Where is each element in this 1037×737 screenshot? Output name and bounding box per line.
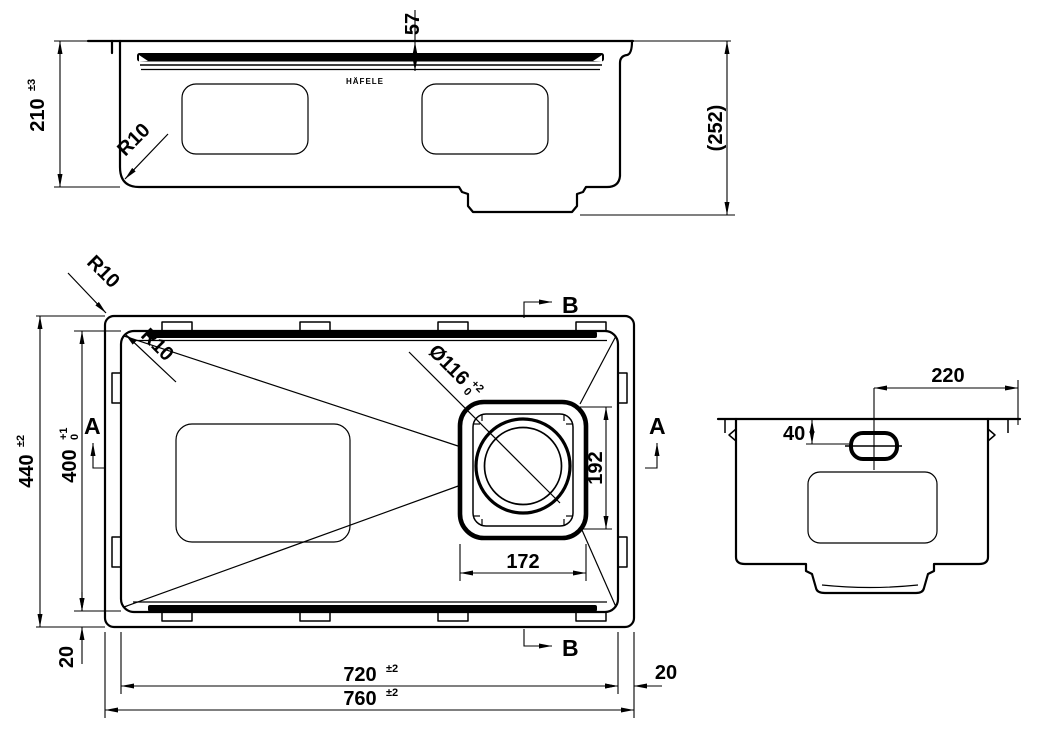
dim-value: 760 xyxy=(343,688,376,710)
tab xyxy=(576,322,606,331)
dim-value: (252) xyxy=(705,105,727,152)
section-label: B xyxy=(562,635,579,661)
sink-technical-drawing: HÄFELE 210 ±3 57 (252) xyxy=(0,0,1037,737)
dim-overflow-depth-40: 40 xyxy=(783,420,849,445)
dim-tolerance: ±2 xyxy=(386,687,398,699)
tab xyxy=(112,537,121,567)
label-panel-plan xyxy=(176,424,350,542)
tab xyxy=(438,322,468,331)
label-panel-left xyxy=(182,84,308,154)
section-view: 220 40 xyxy=(718,365,1020,593)
section-body-outline xyxy=(736,419,988,593)
mounting-tabs xyxy=(112,322,627,621)
bowl-outline xyxy=(121,331,618,612)
section-arrow xyxy=(93,443,105,468)
dim-value: Ø116 xyxy=(424,340,473,389)
dim-value: 40 xyxy=(783,423,805,445)
label-panel-section xyxy=(808,472,937,543)
crease-line xyxy=(580,336,616,404)
tab xyxy=(576,612,606,621)
diameter-leader-line xyxy=(409,352,560,503)
sink-body-outline xyxy=(120,41,632,212)
plan-view: Ø116 +2 0 R10 R10 440 ±2 xyxy=(15,251,677,718)
drain-recess xyxy=(409,352,586,538)
label-panel-right xyxy=(422,84,548,154)
tab xyxy=(162,612,192,621)
section-marker-b-top: B xyxy=(524,292,579,318)
tab xyxy=(162,322,192,331)
dim-value: 172 xyxy=(506,551,539,573)
dim-value: 192 xyxy=(585,451,607,484)
tab xyxy=(618,373,627,403)
ledge-slot-top xyxy=(148,332,597,339)
tab xyxy=(300,322,330,331)
front-view: HÄFELE 210 ±3 57 (252) xyxy=(26,10,735,215)
section-label: B xyxy=(562,292,579,318)
tab xyxy=(618,537,627,567)
drawing-canvas: HÄFELE 210 ±3 57 (252) xyxy=(0,0,1037,737)
dim-value: 20 xyxy=(56,646,78,668)
ledge-slot-bottom xyxy=(148,605,597,612)
dim-tolerance: ±2 xyxy=(386,663,398,675)
dim-value: R10 xyxy=(82,251,124,293)
dim-flange-20-right: 20 xyxy=(595,662,677,686)
dim-tolerance-lower: 0 xyxy=(69,434,81,440)
dim-height-210: 210 ±3 xyxy=(26,41,120,187)
section-marker-b-bottom: B xyxy=(524,629,579,661)
dim-inner-width-720: 720 ±2 xyxy=(121,632,618,694)
sump-inner-line xyxy=(822,585,918,588)
section-marker-a-left: A xyxy=(84,413,105,468)
dim-value: 57 xyxy=(402,13,424,35)
dim-drain-width-172: 172 xyxy=(460,544,586,581)
bottom-crease-lines xyxy=(124,336,616,607)
dim-value: 210 xyxy=(27,98,49,131)
section-label: A xyxy=(84,413,101,439)
dim-drain-diameter: Ø116 +2 0 xyxy=(423,340,486,403)
dim-value: 20 xyxy=(655,662,677,684)
dim-value: 440 xyxy=(16,454,38,487)
tab xyxy=(300,612,330,621)
dim-tolerance: ±2 xyxy=(15,435,27,447)
crease-line xyxy=(582,530,616,607)
crease-line xyxy=(124,485,461,607)
dim-overall-252: (252) xyxy=(580,41,735,215)
brand-logo: HÄFELE xyxy=(346,77,384,86)
dim-value: 720 xyxy=(343,664,376,686)
section-arrow xyxy=(645,443,657,468)
dim-value: 400 xyxy=(59,449,81,482)
section-label: A xyxy=(649,413,666,439)
dim-radius-r10-outer: R10 xyxy=(68,251,124,313)
section-arrow xyxy=(524,629,552,646)
tab xyxy=(112,373,121,403)
ledge-bar xyxy=(137,53,604,62)
dim-tolerance-lower: 0 xyxy=(461,386,474,399)
tab xyxy=(438,612,468,621)
dim-flange-20-left: 20 xyxy=(56,592,105,668)
section-marker-a-right: A xyxy=(645,413,666,468)
dim-value: 220 xyxy=(931,365,964,387)
outer-flange-outline xyxy=(105,316,634,627)
dim-tolerance: ±3 xyxy=(26,79,38,91)
dim-overflow-offset-220: 220 xyxy=(874,365,1018,425)
dim-radius-r10-front: R10 xyxy=(113,119,168,179)
